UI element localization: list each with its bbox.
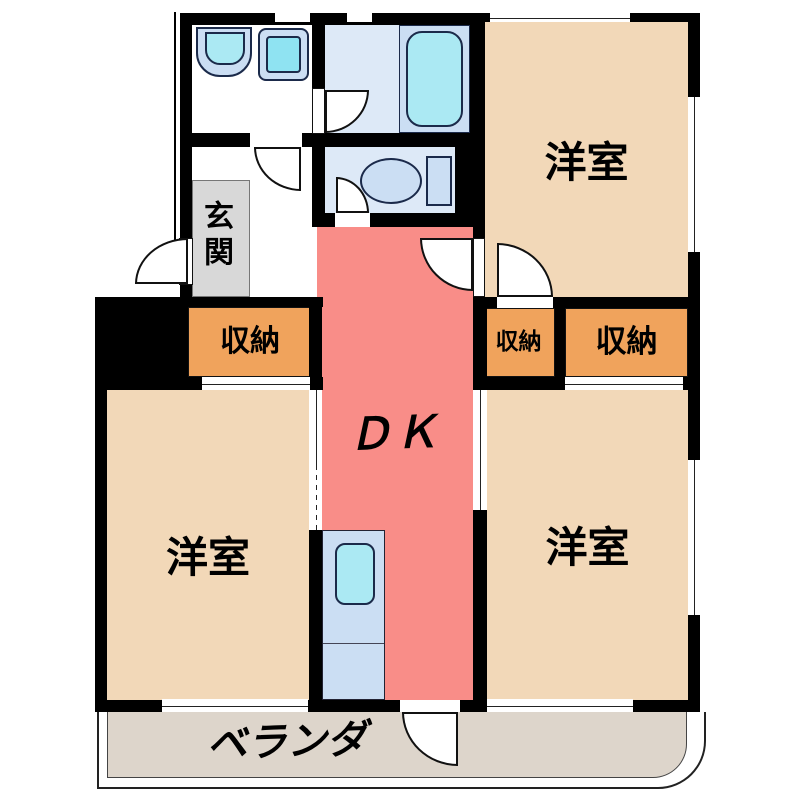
wall-washroom-bathroom-divider xyxy=(312,25,325,88)
toilet-bowl-icon xyxy=(360,158,422,204)
wall-washroom-bottom xyxy=(180,133,470,147)
door-arc-washroom xyxy=(254,147,301,191)
door-gap-tr-room xyxy=(473,238,485,297)
wall-bathroom-right xyxy=(470,22,485,133)
door-gap-bathroom xyxy=(312,88,325,134)
label-western-room-bottom-left: 洋室 xyxy=(107,537,309,579)
wall-br-room-left xyxy=(473,308,487,712)
door-arc-entrance xyxy=(135,238,188,284)
vent-top-washroom xyxy=(275,13,310,22)
floor-plan: 洋室 洋室 洋室 ＤＫ 玄関 収納 収納 収納 ベランダ xyxy=(0,0,800,800)
wall-toilet-right xyxy=(455,133,485,227)
door-gap-washroom xyxy=(250,133,302,147)
label-western-room-top-right: 洋室 xyxy=(485,142,688,184)
bathtub-icon xyxy=(406,31,463,127)
washing-machine-icon xyxy=(258,28,309,81)
window-bottom-left-room xyxy=(162,699,308,712)
label-storage-hall: 収納 xyxy=(188,327,312,357)
door-gap-toilet xyxy=(335,213,370,227)
toilet-tank-icon xyxy=(426,156,452,206)
wall-storage-hall-top xyxy=(188,297,323,307)
kitchen-counter-icon xyxy=(322,530,385,700)
window-right-upper xyxy=(688,97,700,252)
kitchen-counter-divider xyxy=(323,643,384,644)
wall-tr-room-left-stub xyxy=(473,227,485,238)
window-right-lower xyxy=(688,460,700,615)
door-gap-storage-small xyxy=(497,297,553,308)
label-storage-large: 収納 xyxy=(565,327,688,358)
exterior-face-line xyxy=(174,12,176,240)
label-western-room-bottom-right: 洋室 xyxy=(487,527,688,569)
kitchen-sink-icon xyxy=(335,543,375,605)
label-storage-small: 収納 xyxy=(482,331,555,354)
wall-top-left-block xyxy=(180,13,485,25)
window-bottom-right-room xyxy=(487,699,633,712)
vanity-sink-icon xyxy=(196,27,252,77)
vanity-sink-bowl-icon xyxy=(205,32,245,65)
sliding-door-storage-large xyxy=(565,377,683,390)
sliding-door-dk-right xyxy=(473,390,487,510)
vent-top-bathroom xyxy=(347,13,372,22)
wall-storage-divider xyxy=(555,307,565,377)
open-boundary-dk-left xyxy=(309,465,322,530)
label-entrance: 玄関 xyxy=(200,200,230,272)
bathtub-surround xyxy=(399,25,470,133)
wall-storage-large-bottom-stub xyxy=(683,377,700,390)
wall-left-mass xyxy=(95,297,188,390)
washing-machine-drum-icon xyxy=(266,36,301,73)
wall-left-lower xyxy=(95,390,107,712)
door-gap-veranda xyxy=(400,700,460,712)
label-dk: ＤＫ xyxy=(317,409,477,458)
sliding-door-storage-hall xyxy=(202,377,310,390)
wall-hall-toilet-divider xyxy=(312,147,325,213)
window-top-right-room xyxy=(490,13,630,22)
